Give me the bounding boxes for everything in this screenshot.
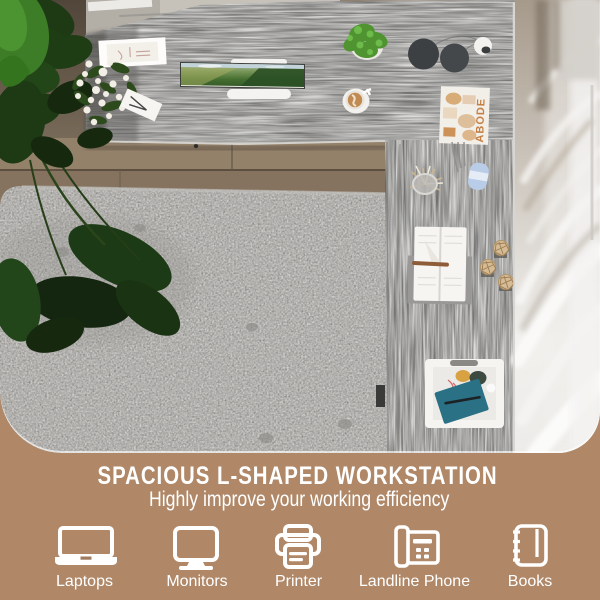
- svg-text:ABODE: ABODE: [474, 98, 488, 143]
